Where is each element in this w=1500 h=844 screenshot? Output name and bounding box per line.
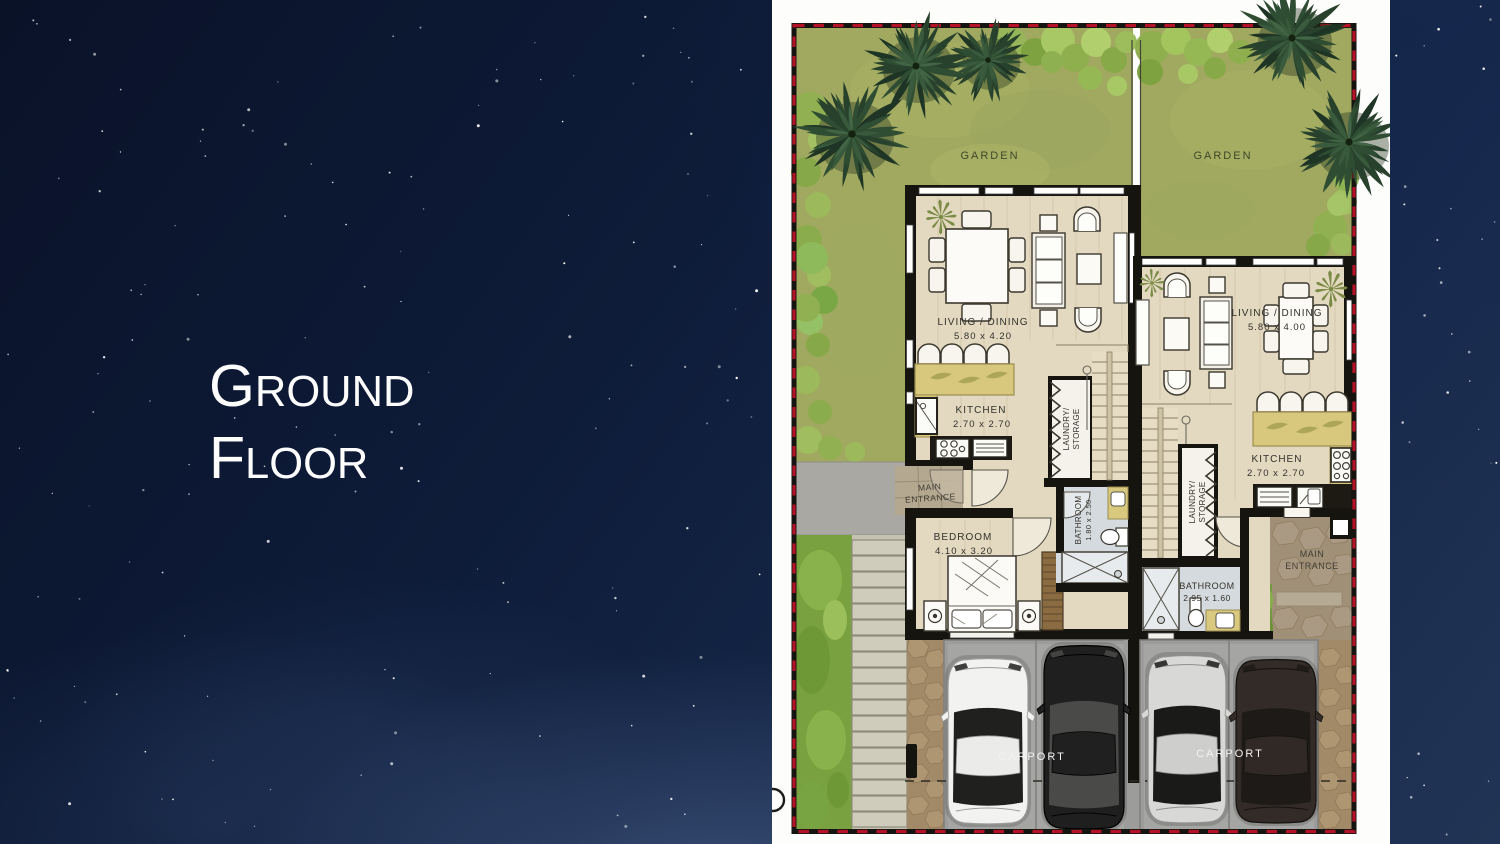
svg-text:LAUNDRY/: LAUNDRY/ <box>1188 480 1197 523</box>
svg-text:5.80 x 4.20: 5.80 x 4.20 <box>954 331 1012 342</box>
svg-text:2.70 x 2.70: 2.70 x 2.70 <box>1247 468 1305 479</box>
svg-text:KITCHEN: KITCHEN <box>956 405 1007 416</box>
svg-text:MAIN: MAIN <box>918 481 942 493</box>
svg-text:LAUNDRY/: LAUNDRY/ <box>1062 407 1071 450</box>
svg-text:BATHROOM: BATHROOM <box>1074 496 1083 545</box>
svg-text:BEDROOM: BEDROOM <box>934 532 993 543</box>
svg-text:LIVING / DINING: LIVING / DINING <box>937 317 1028 328</box>
svg-text:1.80 x 2.50: 1.80 x 2.50 <box>1084 499 1093 541</box>
svg-text:2.70 x 2.70: 2.70 x 2.70 <box>953 419 1011 430</box>
svg-text:BATHROOM: BATHROOM <box>1179 581 1234 591</box>
svg-text:GARDEN: GARDEN <box>1193 150 1252 162</box>
svg-text:KITCHEN: KITCHEN <box>1252 454 1303 465</box>
svg-text:2.95 x 1.60: 2.95 x 1.60 <box>1183 593 1231 603</box>
svg-text:ENTRANCE: ENTRANCE <box>1285 561 1339 571</box>
svg-text:5.80 x 4.00: 5.80 x 4.00 <box>1248 322 1306 333</box>
svg-text:MAIN: MAIN <box>1300 549 1325 559</box>
svg-text:CARPORT: CARPORT <box>1196 748 1264 760</box>
svg-text:LIVING / DINING: LIVING / DINING <box>1231 308 1322 319</box>
svg-text:STORAGE: STORAGE <box>1072 408 1081 449</box>
svg-text:GARDEN: GARDEN <box>960 150 1019 162</box>
svg-text:4.10 x 3.20: 4.10 x 3.20 <box>935 546 993 557</box>
svg-text:CARPORT: CARPORT <box>998 751 1066 763</box>
svg-text:STORAGE: STORAGE <box>1198 481 1207 522</box>
